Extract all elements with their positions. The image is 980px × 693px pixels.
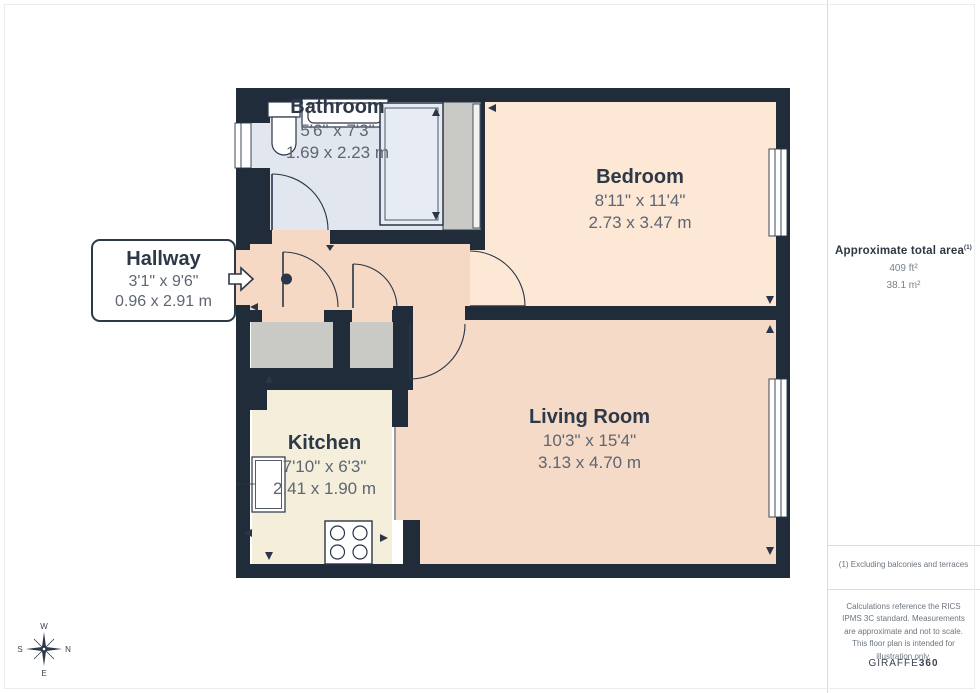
room-dims-metric: 1.69 x 2.23 m bbox=[240, 142, 435, 164]
compass-icon: W N S E bbox=[13, 618, 75, 680]
callout-arrow-icon bbox=[228, 265, 256, 293]
bathroom-door-gap bbox=[272, 230, 330, 244]
bathroom-label: Bathroom 5'6" x 7'3" 1.69 x 2.23 m bbox=[240, 96, 435, 164]
total-area-block: Approximate total area(1) 409 ft² 38.1 m… bbox=[832, 245, 975, 291]
closet2-floor bbox=[350, 322, 393, 368]
kitchen-label: Kitchen 7'10" x 6'3" 2.41 x 1.90 m bbox=[237, 432, 412, 500]
compass-bottom-label: E bbox=[41, 669, 46, 678]
room-dims-metric: 2.41 x 1.90 m bbox=[237, 478, 412, 500]
closet2-door-gap bbox=[352, 310, 392, 322]
compass-left-label: S bbox=[17, 645, 22, 654]
room-dims-metric: 3.13 x 4.70 m bbox=[487, 452, 692, 474]
closet1-door-gap bbox=[262, 310, 324, 322]
brand-name: GIRAFFE bbox=[868, 658, 918, 669]
hallway-callout: Hallway 3'1" x 9'6" 0.96 x 2.91 m bbox=[91, 239, 236, 322]
giraffe360-logo: GIRAFFE360 bbox=[832, 658, 975, 669]
room-name: Bathroom bbox=[240, 96, 435, 120]
living-room-label: Living Room 10'3" x 15'4" 3.13 x 4.70 m bbox=[487, 406, 692, 474]
room-name: Bedroom bbox=[540, 166, 740, 190]
room-dims-imperial: 3'1" x 9'6" bbox=[93, 272, 234, 293]
bedroom-label: Bedroom 8'11" x 11'4" 2.73 x 3.47 m bbox=[540, 166, 740, 234]
footnote-marker: (1) bbox=[964, 245, 972, 251]
total-area-title: Approximate total area(1) bbox=[832, 245, 975, 257]
room-dims-metric: 2.73 x 3.47 m bbox=[540, 212, 740, 234]
total-area-imperial: 409 ft² bbox=[832, 263, 975, 274]
compass-right-label: N bbox=[65, 645, 71, 654]
room-dims-imperial: 7'10" x 6'3" bbox=[237, 456, 412, 478]
disclaimer-text: Calculations reference the RICS IPMS 3C … bbox=[836, 601, 971, 663]
living-door-gap bbox=[413, 306, 465, 320]
stove bbox=[325, 521, 372, 564]
floorplan-page: Bathroom 5'6" x 7'3" 1.69 x 2.23 m Bedro… bbox=[0, 0, 980, 693]
brand-number: 360 bbox=[919, 658, 939, 669]
room-dims-imperial: 5'6" x 7'3" bbox=[240, 120, 435, 142]
bedroom-door-gap bbox=[470, 250, 485, 306]
footnote-text: (1) Excluding balconies and terraces bbox=[832, 560, 975, 569]
sidebar-rule-2 bbox=[828, 589, 980, 590]
bedroom-window bbox=[769, 149, 787, 236]
closet1-floor bbox=[251, 322, 333, 368]
room-dims-metric: 0.96 x 2.91 m bbox=[93, 292, 234, 313]
total-area-metric: 38.1 m² bbox=[832, 280, 975, 291]
compass-top-label: W bbox=[40, 622, 48, 631]
room-name: Kitchen bbox=[237, 432, 412, 456]
room-dims-imperial: 10'3" x 15'4" bbox=[487, 430, 692, 452]
living-room-window bbox=[769, 379, 787, 517]
sidebar-rule-1 bbox=[828, 545, 980, 546]
room-name: Living Room bbox=[487, 406, 692, 430]
kitchen-floor-upper bbox=[267, 390, 392, 412]
room-name: Hallway bbox=[93, 248, 234, 272]
room-dims-imperial: 8'11" x 11'4" bbox=[540, 190, 740, 212]
